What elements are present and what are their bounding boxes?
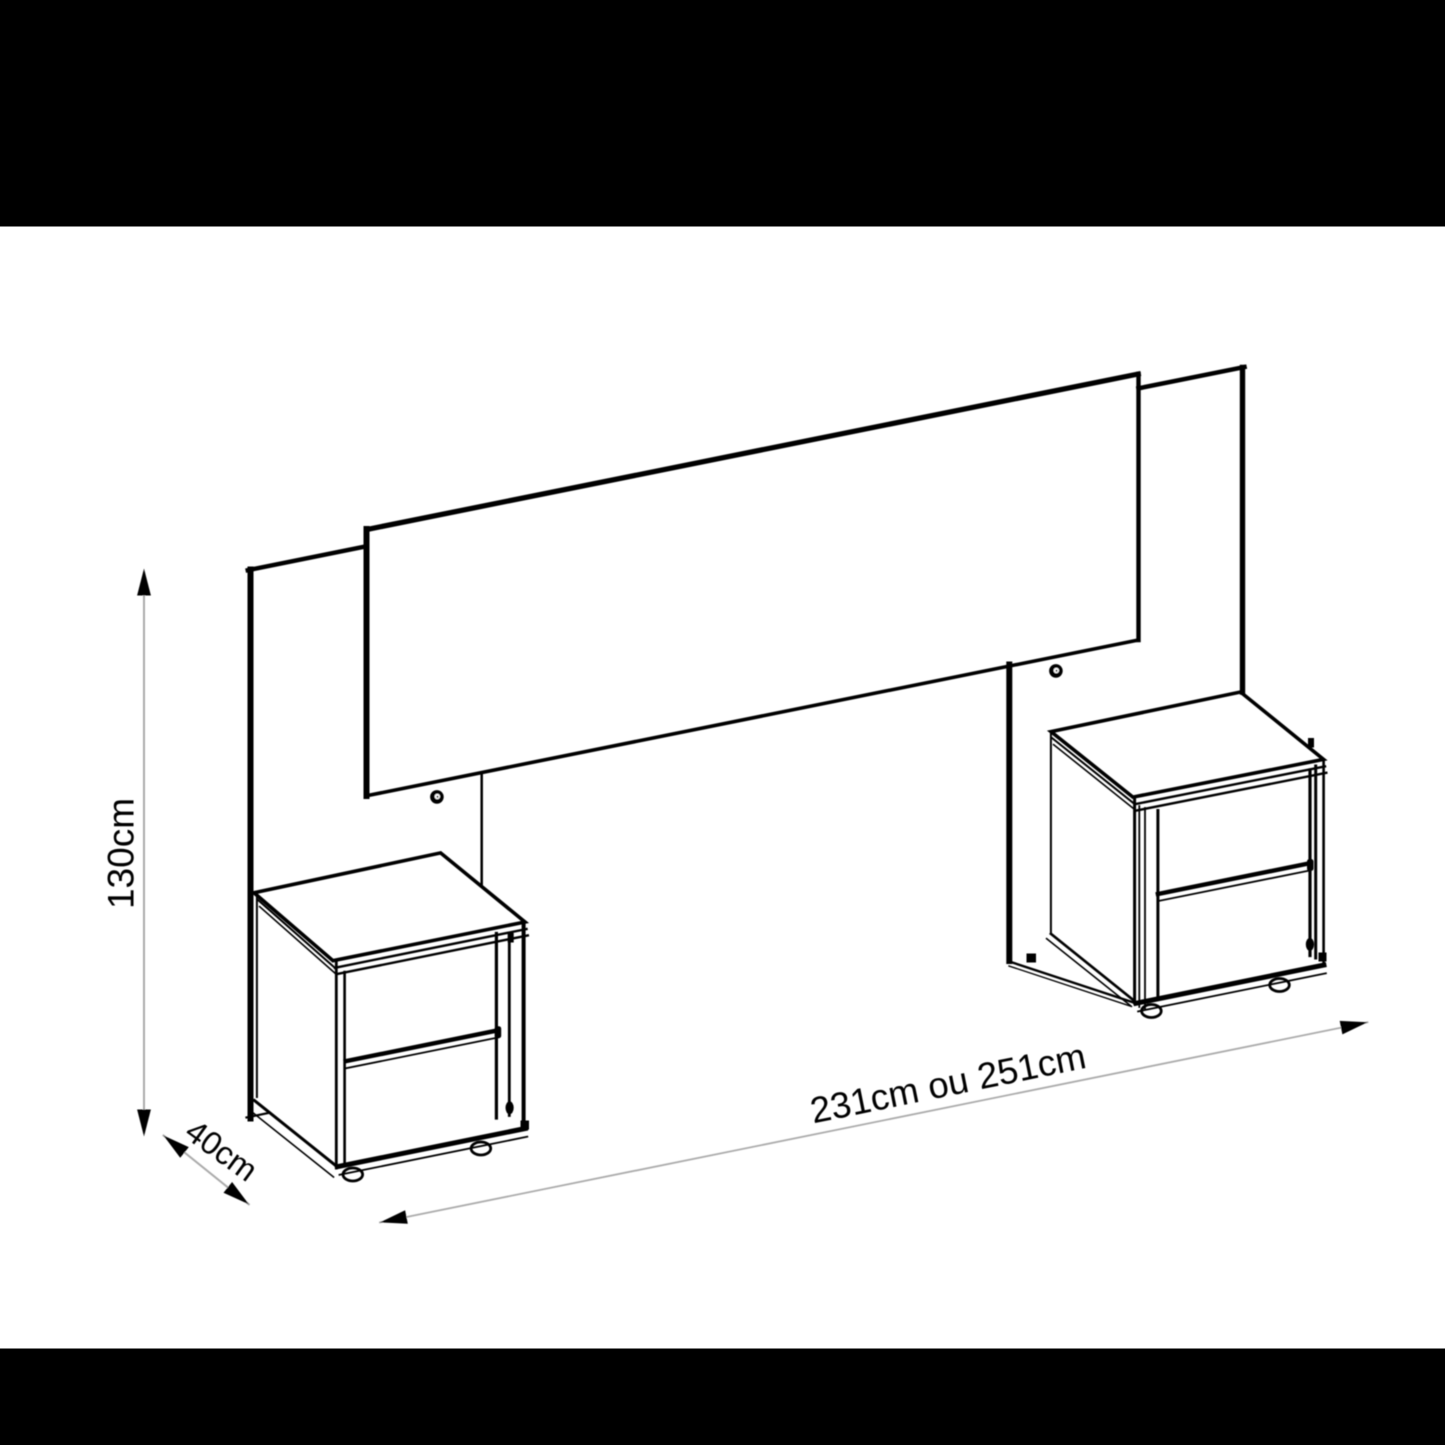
svg-text:130cm: 130cm [101, 798, 142, 909]
